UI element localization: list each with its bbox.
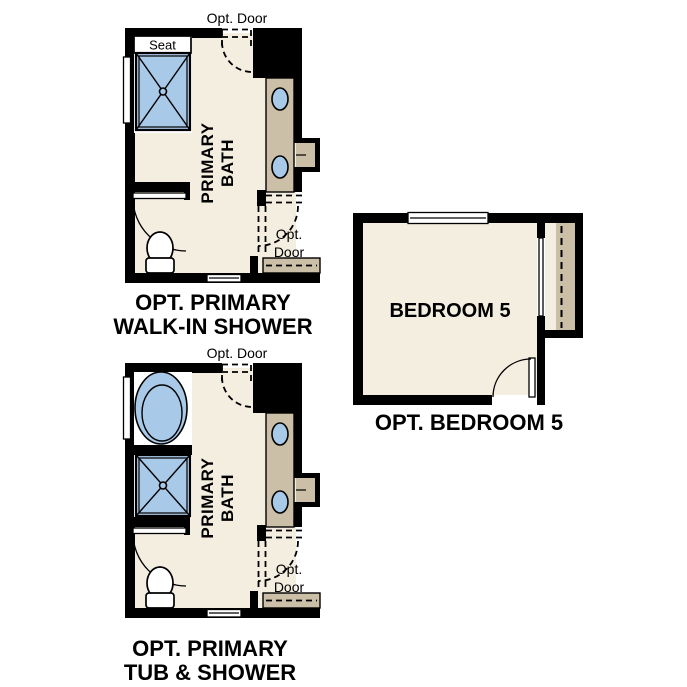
wall-niche <box>294 138 320 172</box>
wall-segment <box>294 138 320 143</box>
seat-label: Seat <box>149 38 176 53</box>
room-label-line2: BATH <box>218 139 237 187</box>
wall-segment <box>315 478 320 502</box>
door-leaf <box>133 528 186 534</box>
plan-bedroom-5: BEDROOM 5 OPT. BEDROOM 5 <box>353 213 583 436</box>
wall-segment <box>294 28 302 140</box>
plan-caption-line1: OPT. PRIMARY <box>132 636 288 661</box>
shower-drain <box>160 88 167 95</box>
wall-niche <box>294 473 320 507</box>
window <box>124 377 131 439</box>
wall-segment <box>125 517 190 527</box>
wall-segment <box>315 143 320 167</box>
room-label: BEDROOM 5 <box>389 300 510 322</box>
toilet-tank <box>146 593 174 608</box>
wall-segment <box>575 213 583 338</box>
opt-door-label-line1: Opt. <box>276 561 302 577</box>
sink <box>272 491 288 513</box>
threshold <box>207 275 241 283</box>
plan-caption-line2: WALK-IN SHOWER <box>113 314 312 339</box>
toilet-tank <box>146 258 174 273</box>
opt-door-label: Opt. Door <box>207 10 268 26</box>
sink <box>272 423 288 445</box>
shower-drain <box>160 482 167 489</box>
wall-segment <box>294 473 320 478</box>
wall-segment <box>130 444 192 455</box>
room-label-line2: BATH <box>218 474 237 522</box>
window <box>124 57 131 123</box>
room-label-line1: PRIMARY <box>198 122 217 203</box>
wall-segment <box>257 190 266 206</box>
plan-caption-line1: OPT. PRIMARY <box>135 290 291 315</box>
room-label-line1: PRIMARY <box>198 457 217 538</box>
threshold <box>207 610 241 618</box>
wall-segment <box>294 502 320 507</box>
wall-segment <box>537 338 545 405</box>
plan-caption-line2: TUB & SHOWER <box>124 660 296 685</box>
door-leaf <box>133 193 186 199</box>
wall-segment <box>257 525 266 541</box>
opt-door-label: Opt. Door <box>207 345 268 361</box>
toilet <box>146 567 174 608</box>
floorplan-options-image: Opt. Door Opt. Door Seat PRIMARY BATH OP… <box>0 0 687 687</box>
wall-segment <box>537 316 545 330</box>
wall-segment <box>250 591 258 611</box>
toilet <box>146 232 174 273</box>
wall-segment <box>250 256 258 276</box>
wall-segment <box>125 363 222 373</box>
wall-segment <box>294 172 302 192</box>
wall-segment <box>294 363 302 475</box>
shower <box>134 455 192 517</box>
floorplan-drawing: Opt. Door Opt. Door Seat PRIMARY BATH OP… <box>0 0 687 687</box>
wall-segment <box>537 223 545 238</box>
wall-segment <box>353 213 363 405</box>
sliding-closet-doors <box>539 238 543 316</box>
door-leaf <box>529 358 535 397</box>
plan-tub-shower: Opt. Door Opt. Door PRIMARY BATH OPT. PR… <box>124 345 321 685</box>
wall-segment <box>353 395 492 405</box>
sink <box>272 88 288 110</box>
plan-walk-in-shower: Opt. Door Opt. Door Seat PRIMARY BATH OP… <box>113 10 320 339</box>
window <box>408 213 488 224</box>
wall-segment <box>294 167 320 172</box>
opt-door-label-line1: Opt. <box>276 226 302 242</box>
closet-shelf <box>556 223 575 330</box>
wall-segment <box>294 507 302 527</box>
double-sink-vanity <box>266 413 294 527</box>
double-sink-vanity <box>266 78 294 192</box>
sink <box>272 156 288 178</box>
wall-segment <box>537 330 583 338</box>
plan-caption: OPT. BEDROOM 5 <box>375 410 563 435</box>
wall-segment <box>125 182 190 192</box>
